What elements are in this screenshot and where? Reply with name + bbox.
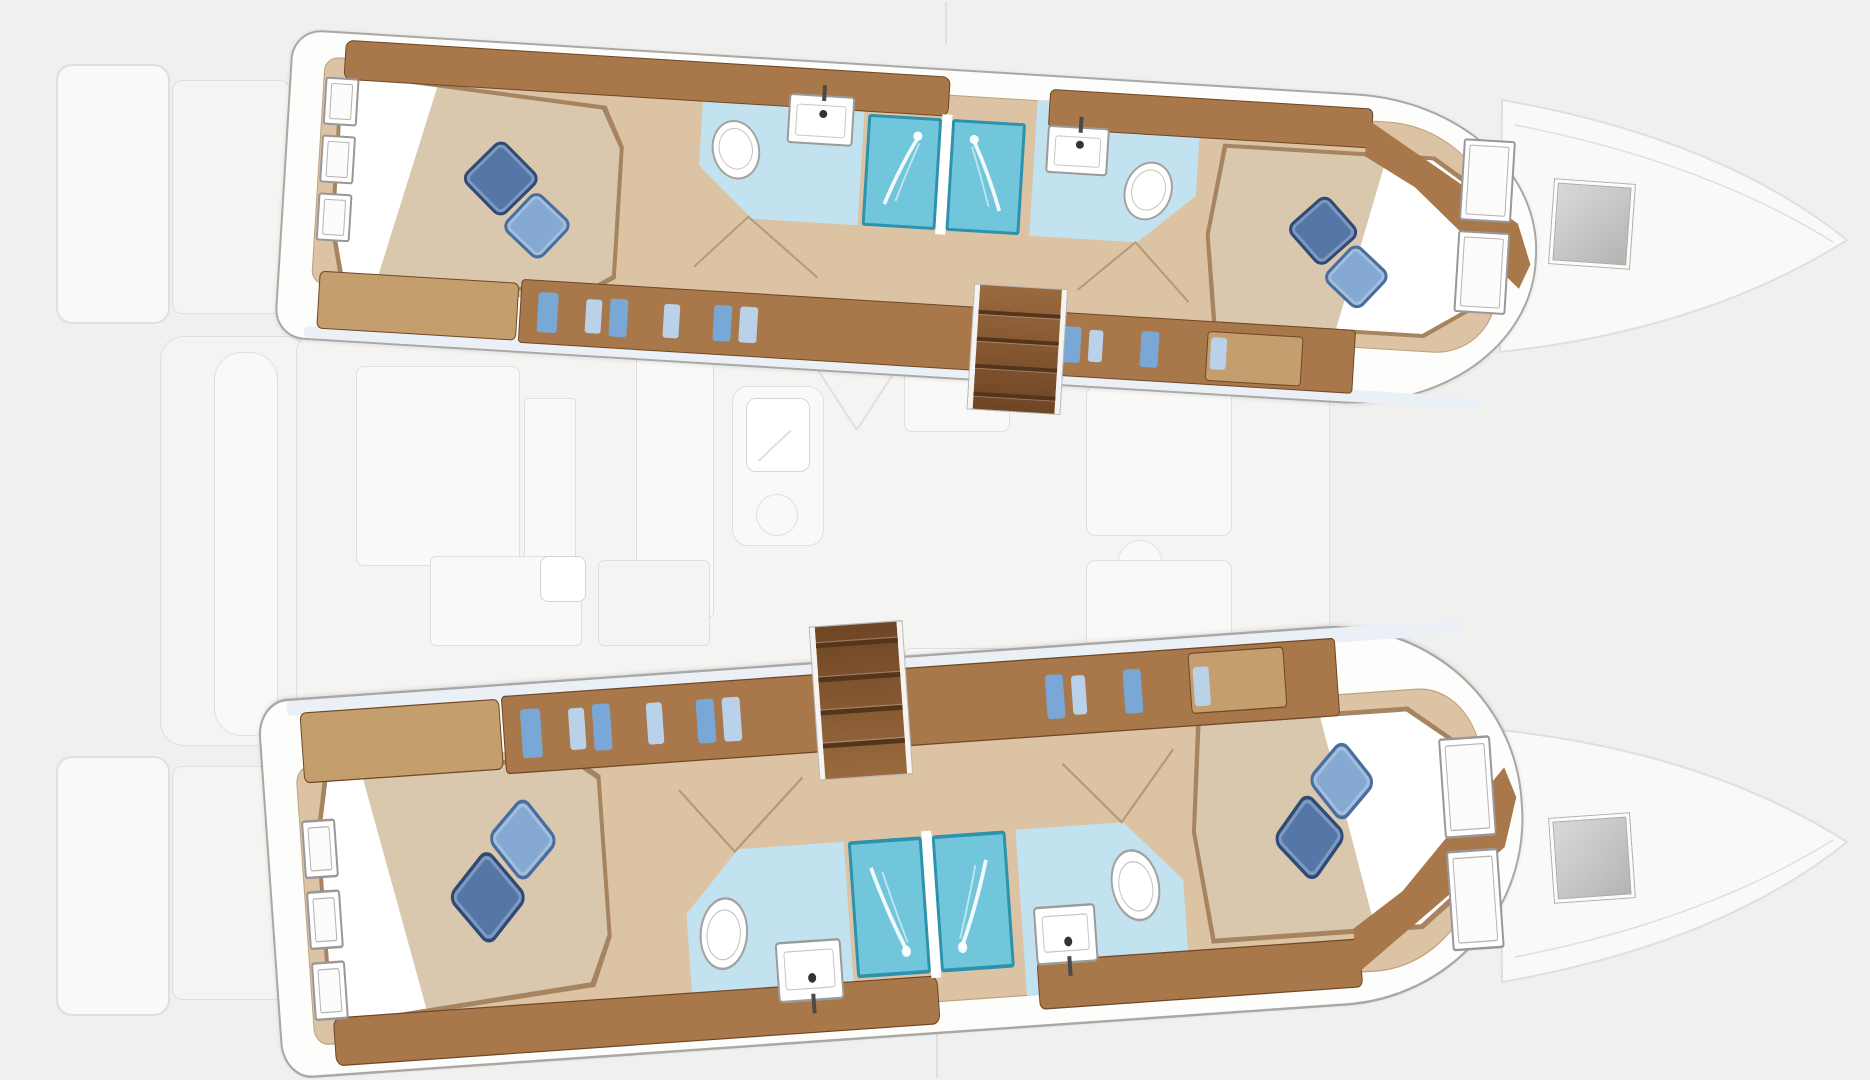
window-pane [312,897,337,943]
companionway-stairs [810,621,912,779]
shower-stall [932,830,1015,972]
wardrobe-item [712,305,732,342]
deck-hatch-port [1549,179,1635,268]
hull-window [1453,230,1510,315]
bathroom-sink [1033,903,1099,966]
wardrobe-item [536,292,558,333]
aft-dresser [316,271,519,341]
wardrobe-item [1122,669,1143,714]
sink-basin [783,948,836,991]
toilet-bowl [1125,165,1171,216]
shower-spray-icon [949,122,1023,232]
faucet [819,109,827,117]
hull-window [323,77,360,127]
window-pane [1445,743,1491,831]
window-pane [317,968,342,1014]
toilet-bowl [715,125,757,173]
wardrobe-item [1088,330,1104,363]
toilet-bowl [703,905,745,964]
window-pane [322,199,346,236]
hull-window [1459,138,1516,223]
wardrobe-item [695,698,716,743]
catamaran-floorplan-canvas [0,0,1870,1080]
hull-window [316,192,353,242]
stair-tread [818,671,900,682]
wardrobe-item [520,708,543,758]
toilet-bowl [1112,855,1159,917]
stair-tread [821,705,903,716]
wardrobe-item [646,702,665,745]
wardrobe-item [1062,326,1082,363]
hull-window [1446,848,1505,952]
bathroom-sink [775,938,845,1004]
wardrobe-item [1192,666,1211,706]
hull-window [311,960,349,1021]
deck-hatch-starboard [1549,813,1635,902]
wardrobe-item [584,299,602,334]
hull-window [319,134,356,184]
shower-stall [848,836,931,978]
wardrobe-item [608,298,628,337]
wardrobe-item [721,697,742,742]
window-pane [326,141,350,178]
shower-spray-icon [865,117,939,227]
aft-dresser [299,699,503,784]
stair-tread [973,391,1055,400]
faucet-stem [1067,956,1072,976]
wardrobe-item [1071,675,1088,715]
bathroom-sink [786,93,855,147]
stair-tread [823,738,905,749]
companionway-stairs [968,285,1067,414]
hull-window [301,818,339,879]
window-pane [1465,145,1509,217]
window-pane [1460,236,1504,308]
shower-spray-icon [935,834,1012,968]
wardrobe-item [592,703,613,751]
stair-tread [975,364,1057,373]
wardrobe-item [1209,337,1227,370]
faucet-stem [822,85,827,101]
stair-tread [816,638,898,649]
stair-tread [978,310,1060,319]
wardrobe-item [1045,674,1066,719]
faucet-stem [1079,117,1084,133]
wardrobe-item [662,304,680,339]
sink-basin [1041,913,1089,953]
shower-stall [945,119,1026,235]
bathroom-sink [1045,125,1110,177]
stair-tread [977,337,1059,346]
window-pane [1452,855,1498,943]
wardrobe-item [568,707,587,750]
shower-spray-icon [851,840,928,974]
window-pane [307,826,332,872]
sink-basin [795,103,847,138]
wardrobe-item [738,306,758,343]
window-pane [329,83,353,120]
wardrobe-item [1139,331,1159,368]
hull-window [1438,735,1497,839]
faucet-stem [811,994,816,1014]
hull-window [306,889,344,950]
shower-stall [862,114,943,230]
